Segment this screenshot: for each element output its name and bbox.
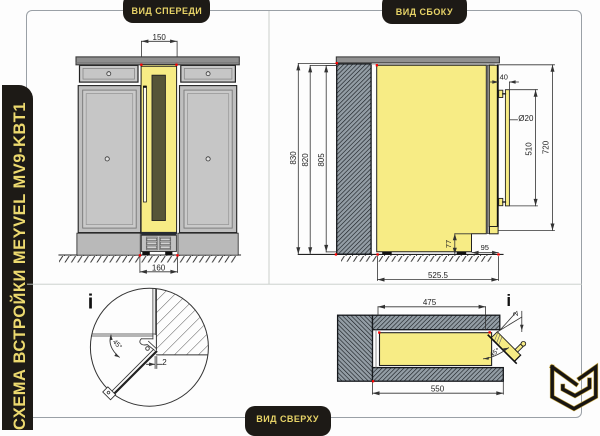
svg-text:i: i [506,291,511,310]
svg-text:Ø20: Ø20 [518,114,534,123]
svg-text:830: 830 [289,151,298,165]
svg-text:475: 475 [423,298,437,307]
svg-text:820: 820 [301,153,310,167]
svg-text:i: i [88,292,94,314]
svg-text:525.5: 525.5 [428,271,449,280]
svg-text:2: 2 [511,312,520,316]
svg-text:720: 720 [542,140,551,154]
svg-text:95: 95 [481,243,489,252]
svg-text:150: 150 [153,33,167,42]
svg-text:805: 805 [317,153,326,167]
svg-text:160: 160 [152,264,166,273]
svg-text:40: 40 [500,73,508,82]
svg-text:2: 2 [162,358,167,367]
svg-text:550: 550 [431,384,445,393]
svg-text:77: 77 [444,240,453,248]
svg-text:510: 510 [525,142,534,156]
